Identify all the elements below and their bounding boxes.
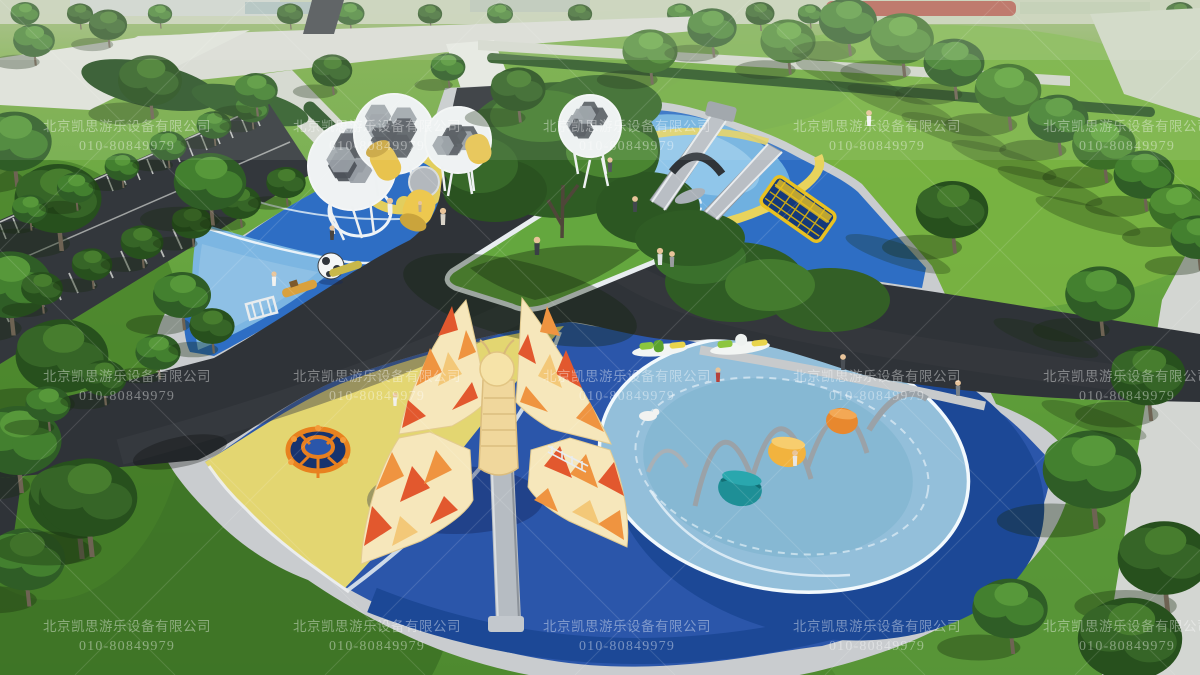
svg-text:010-80849979: 010-80849979 (329, 639, 425, 654)
svg-text:010-80849979: 010-80849979 (829, 389, 925, 404)
svg-text:010-80849979: 010-80849979 (579, 639, 675, 654)
svg-text:010-80849979: 010-80849979 (329, 139, 425, 154)
svg-text:北京凯思游乐设备有限公司: 北京凯思游乐设备有限公司 (43, 618, 211, 634)
svg-text:北京凯思游乐设备有限公司: 北京凯思游乐设备有限公司 (293, 618, 461, 634)
svg-text:010-80849979: 010-80849979 (79, 639, 175, 654)
svg-text:北京凯思游乐设备有限公司: 北京凯思游乐设备有限公司 (1043, 368, 1200, 384)
svg-text:010-80849979: 010-80849979 (829, 139, 925, 154)
svg-text:010-80849979: 010-80849979 (79, 389, 175, 404)
svg-text:010-80849979: 010-80849979 (1079, 639, 1175, 654)
svg-text:北京凯思游乐设备有限公司: 北京凯思游乐设备有限公司 (793, 118, 961, 134)
svg-text:010-80849979: 010-80849979 (329, 389, 425, 404)
svg-text:北京凯思游乐设备有限公司: 北京凯思游乐设备有限公司 (43, 368, 211, 384)
svg-text:北京凯思游乐设备有限公司: 北京凯思游乐设备有限公司 (543, 118, 711, 134)
svg-text:010-80849979: 010-80849979 (79, 139, 175, 154)
svg-text:北京凯思游乐设备有限公司: 北京凯思游乐设备有限公司 (293, 368, 461, 384)
svg-text:010-80849979: 010-80849979 (1079, 139, 1175, 154)
svg-text:北京凯思游乐设备有限公司: 北京凯思游乐设备有限公司 (793, 368, 961, 384)
svg-text:北京凯思游乐设备有限公司: 北京凯思游乐设备有限公司 (293, 118, 461, 134)
svg-text:010-80849979: 010-80849979 (579, 389, 675, 404)
svg-text:北京凯思游乐设备有限公司: 北京凯思游乐设备有限公司 (793, 618, 961, 634)
svg-text:010-80849979: 010-80849979 (1079, 389, 1175, 404)
svg-text:北京凯思游乐设备有限公司: 北京凯思游乐设备有限公司 (543, 368, 711, 384)
svg-text:北京凯思游乐设备有限公司: 北京凯思游乐设备有限公司 (1043, 618, 1200, 634)
svg-text:北京凯思游乐设备有限公司: 北京凯思游乐设备有限公司 (543, 618, 711, 634)
svg-text:010-80849979: 010-80849979 (579, 139, 675, 154)
svg-text:北京凯思游乐设备有限公司: 北京凯思游乐设备有限公司 (43, 118, 211, 134)
svg-text:北京凯思游乐设备有限公司: 北京凯思游乐设备有限公司 (1043, 118, 1200, 134)
svg-text:010-80849979: 010-80849979 (829, 639, 925, 654)
